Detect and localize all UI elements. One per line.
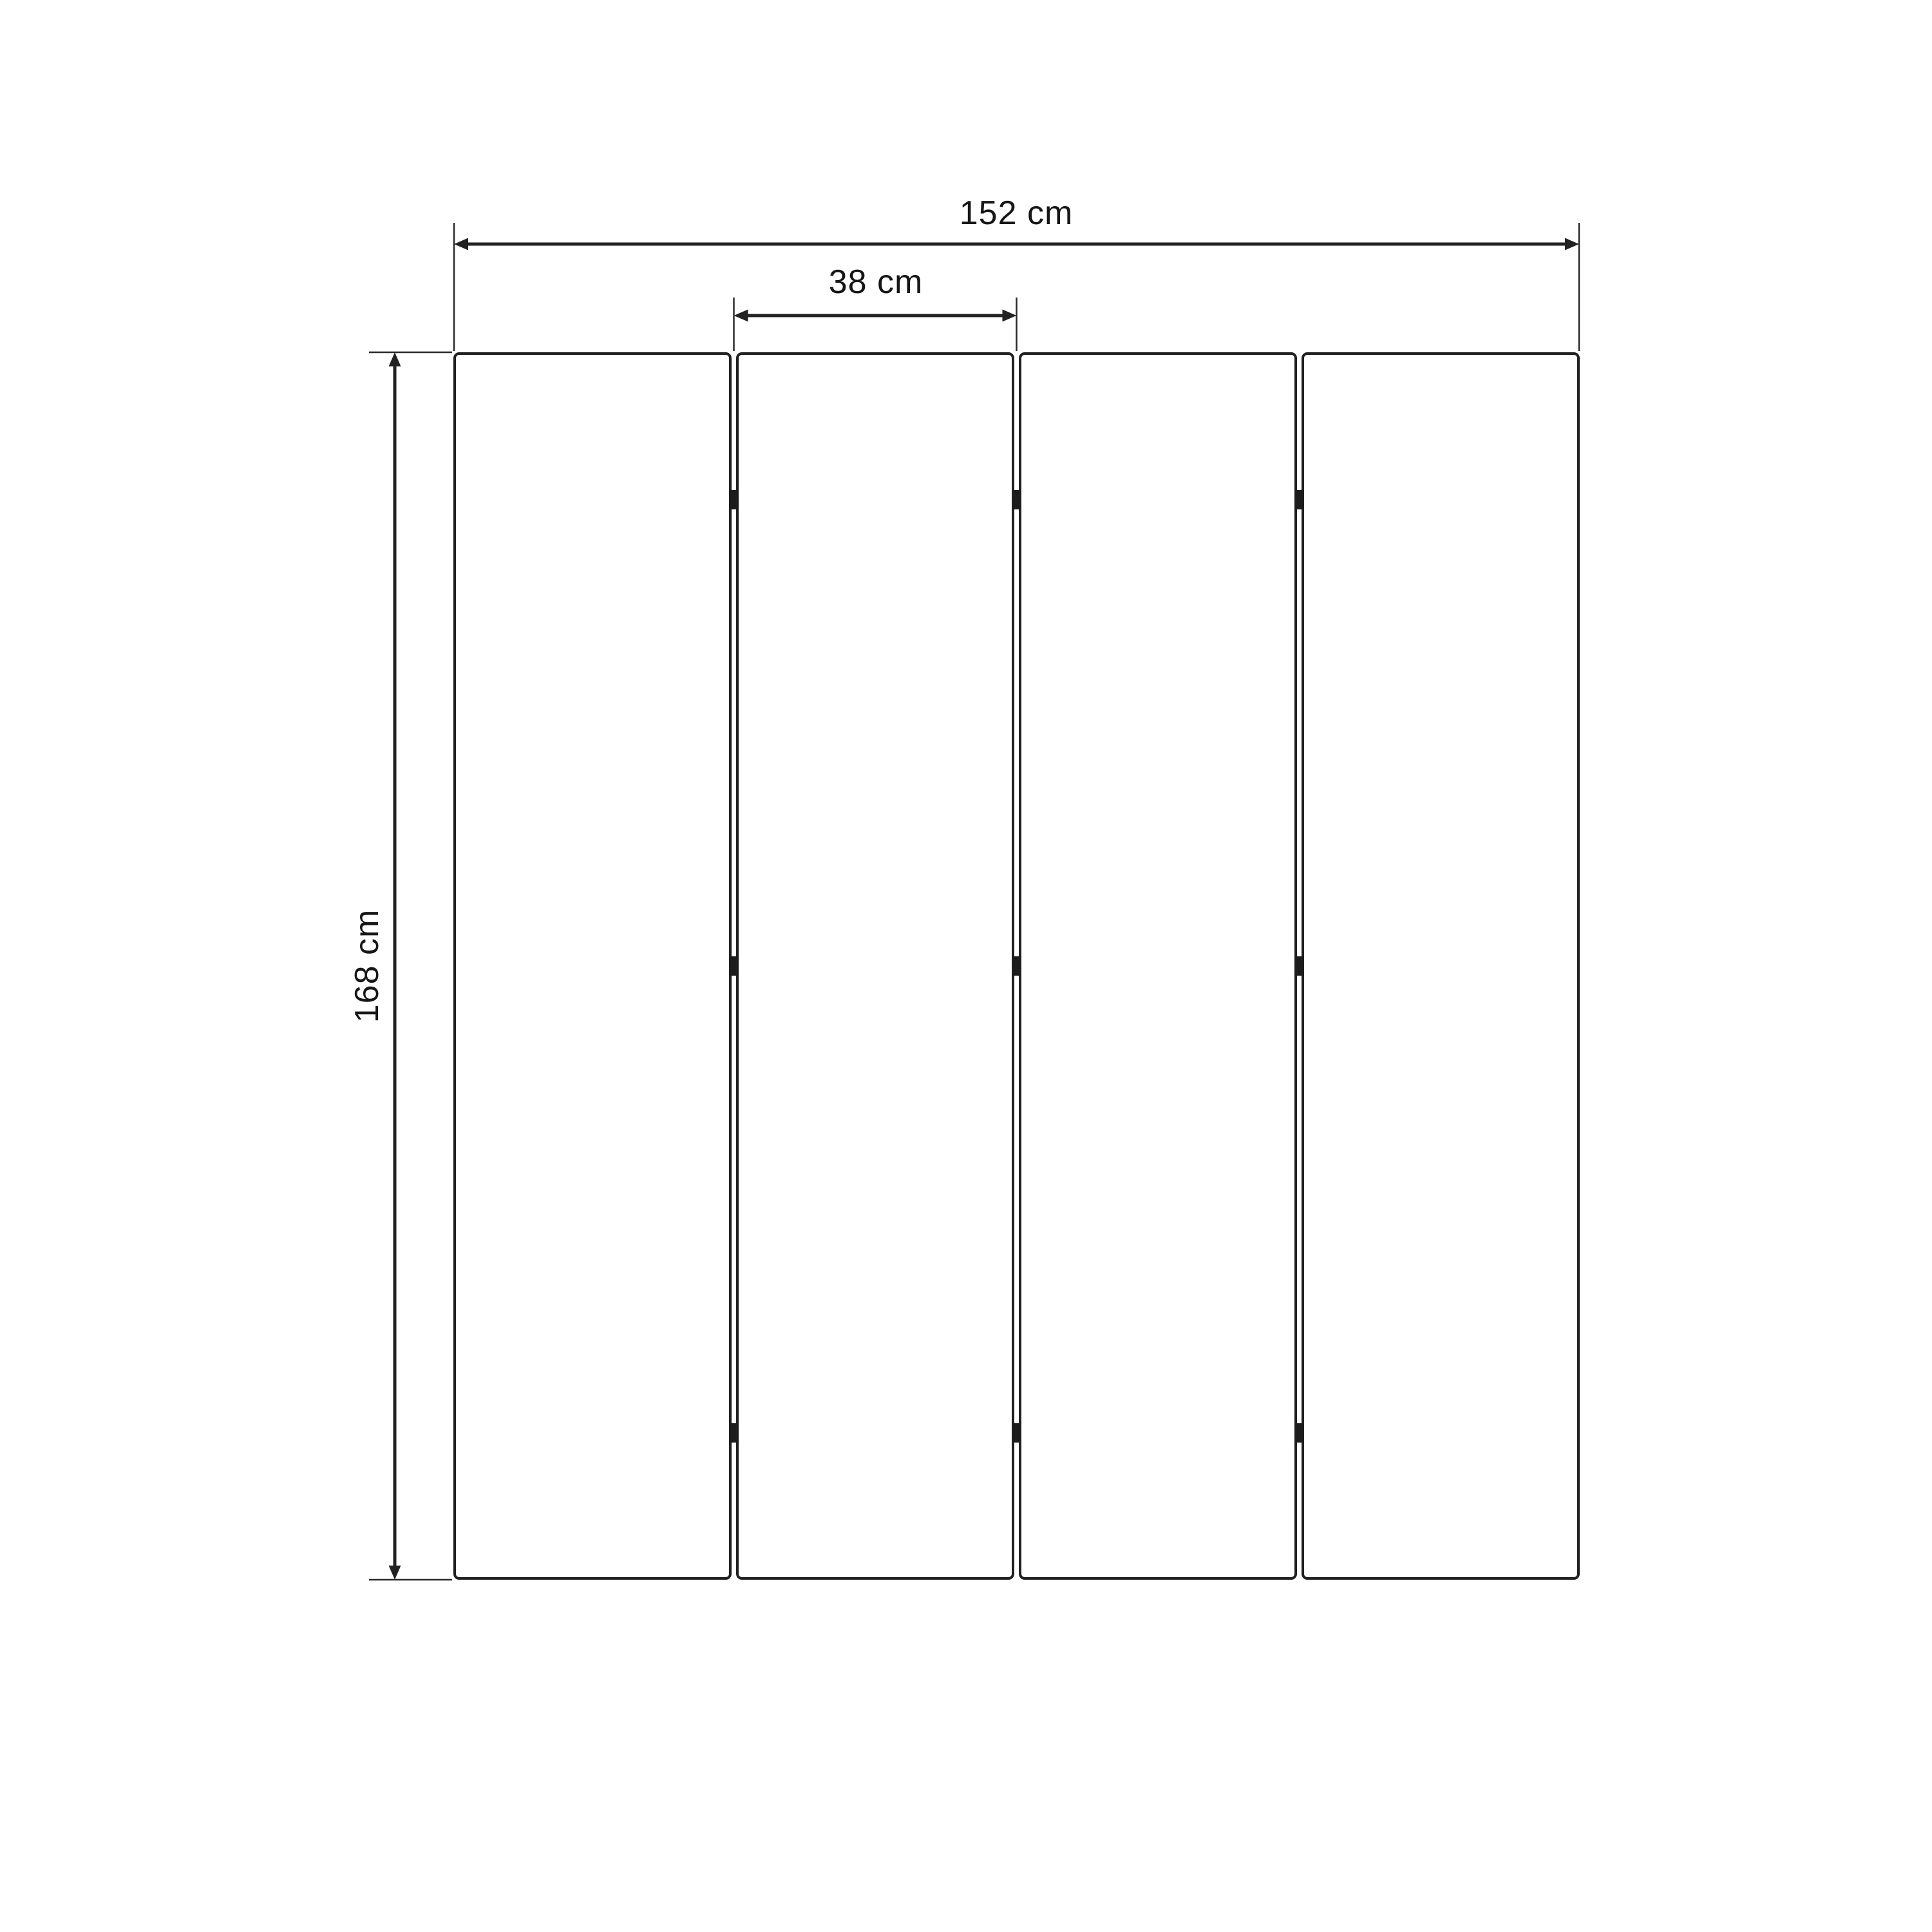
panel-2 <box>736 352 1014 1580</box>
arrowhead-down-icon <box>389 1566 401 1580</box>
arrowhead-left-icon <box>734 310 748 322</box>
arrowhead-left-icon <box>454 238 468 251</box>
hinge-mark <box>1295 1423 1303 1443</box>
hinge-mark <box>1012 956 1021 976</box>
hinge-mark <box>1012 490 1021 509</box>
panel-3 <box>1019 352 1297 1580</box>
hinge-mark <box>730 1423 738 1443</box>
arrowhead-right-icon <box>1565 238 1579 251</box>
dimension-drawing-canvas: 152 cm 38 cm 168 cm <box>0 0 1932 1932</box>
total-width-label: 152 cm <box>960 194 1074 232</box>
arrowhead-right-icon <box>1003 310 1017 322</box>
panel-1 <box>453 352 732 1580</box>
panel-width-label: 38 cm <box>829 263 923 301</box>
panel-4 <box>1302 352 1580 1580</box>
hinge-mark <box>1295 490 1303 509</box>
height-label: 168 cm <box>348 909 386 1023</box>
arrowhead-up-icon <box>389 352 401 366</box>
hinge-mark <box>1012 1423 1021 1443</box>
hinge-mark <box>730 956 738 976</box>
panel-width-dimension <box>734 298 1017 351</box>
hinge-mark <box>730 490 738 509</box>
hinge-mark <box>1295 956 1303 976</box>
